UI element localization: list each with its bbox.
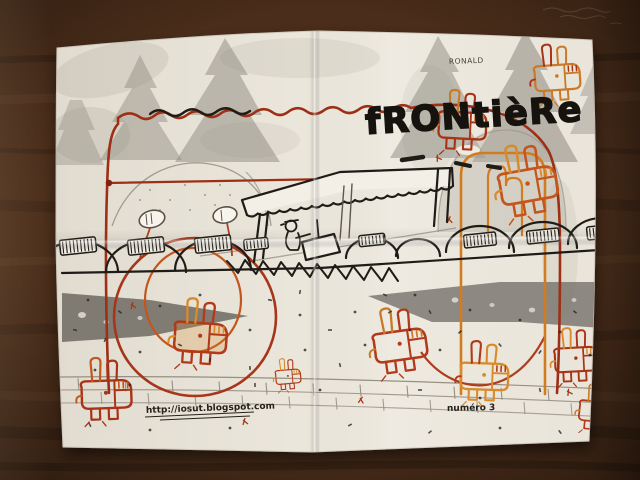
ground-dot	[149, 429, 152, 432]
ground-dot	[94, 369, 97, 372]
ground-dot	[479, 397, 482, 400]
ground-dot	[589, 354, 592, 357]
ground-dash	[254, 383, 256, 387]
ground-dash	[249, 366, 251, 370]
ground-dot	[129, 384, 132, 387]
photo-of-drawing: fRONtièRe RONALD http://iosut.blogspot.c…	[0, 0, 640, 480]
ground-dot	[159, 305, 162, 308]
ground-dot	[439, 349, 442, 352]
ground-dot	[499, 427, 502, 430]
ground-dot	[559, 331, 562, 334]
issue-number: numéro 3	[447, 402, 496, 414]
ground-dot	[469, 309, 472, 312]
ground-dot	[354, 311, 357, 314]
artist-signature: RONALD	[449, 56, 484, 66]
red-ink-blotch	[106, 180, 112, 186]
ground-dot	[414, 294, 417, 297]
ground-dash	[418, 389, 422, 391]
artwork: fRONtièRe RONALD http://iosut.blogspot.c…	[38, 25, 636, 460]
ground-dot	[139, 351, 142, 354]
ground-dot	[249, 329, 252, 332]
ground-dot	[364, 344, 367, 347]
ground-dot	[519, 319, 522, 322]
title-dash	[402, 157, 423, 160]
scene-svg: fRONtièRe RONALD http://iosut.blogspot.c…	[0, 0, 640, 480]
ground-dot	[87, 299, 90, 302]
ground-dot	[229, 427, 232, 430]
ground-dot	[199, 294, 202, 297]
ground-dot	[409, 329, 412, 332]
